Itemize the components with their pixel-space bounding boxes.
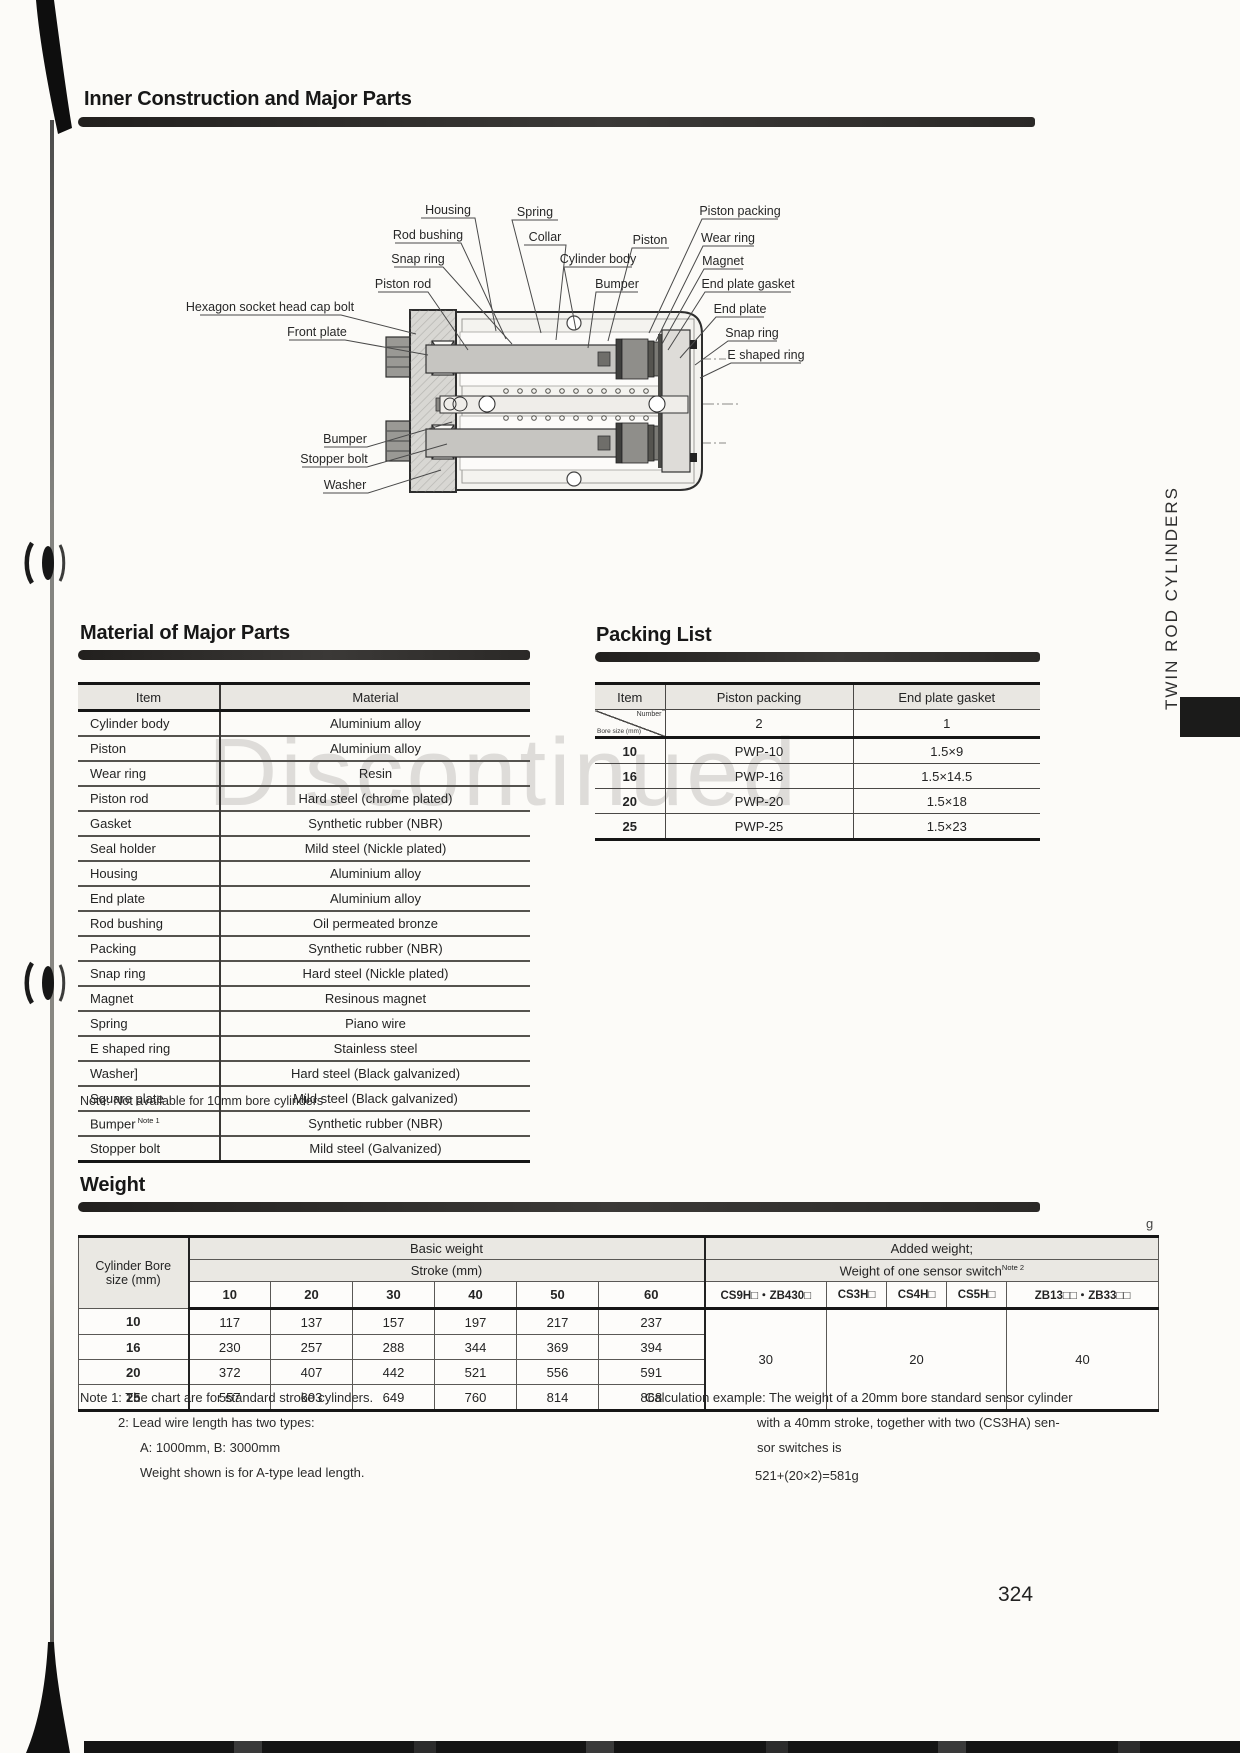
material-item: Housing — [78, 861, 220, 886]
weight-bore-size: 10 — [79, 1309, 189, 1335]
packing-header-end-plate-gasket: End plate gasket — [853, 684, 1040, 710]
stroke-column-header: 60 — [599, 1282, 705, 1309]
packing-row: 10PWP-101.5×9 — [595, 738, 1040, 764]
stroke-column-header: 50 — [517, 1282, 599, 1309]
stroke-header: Stroke (mm) — [189, 1260, 705, 1282]
section-bar — [595, 652, 1040, 662]
diagram-part-label: Piston — [633, 233, 668, 247]
material-item: Bumper Note 1 — [78, 1111, 220, 1136]
material-table: Item Material Cylinder bodyAluminium all… — [78, 682, 530, 1163]
weight-value: 591 — [599, 1360, 705, 1385]
added-weight-header: Added weight; — [705, 1237, 1159, 1260]
diagram-part-label: E shaped ring — [727, 348, 804, 362]
weight-value: 257 — [271, 1335, 353, 1360]
packing-bore-size: 25 — [595, 814, 665, 840]
section-title-weight: Weight — [80, 1174, 145, 1197]
packing-bore-size: 16 — [595, 764, 665, 789]
sensor-switch-header: Weight of one sensor switchNote 2 — [705, 1260, 1159, 1282]
cylinder-cross-section-diagram: HousingSpringPiston packingRod bushingCo… — [0, 0, 1240, 620]
weight-value: 344 — [435, 1335, 517, 1360]
sensor-switch-column-header: CS3H□ — [827, 1282, 887, 1309]
diagram-part-label: Rod bushing — [393, 228, 463, 242]
material-row: Wear ringResin — [78, 761, 530, 786]
material-value: Synthetic rubber (NBR) — [220, 811, 530, 836]
packing-count: 2 — [665, 710, 853, 738]
weight-value: 442 — [353, 1360, 435, 1385]
material-row: SpringPiano wire — [78, 1011, 530, 1036]
weight-value: 407 — [271, 1360, 353, 1385]
material-value: Aluminium alloy — [220, 886, 530, 911]
material-row: MagnetResinous magnet — [78, 986, 530, 1011]
material-item: Packing — [78, 936, 220, 961]
diagram-part-label: Magnet — [702, 254, 744, 268]
packing-row: 16PWP-161.5×14.5 — [595, 764, 1040, 789]
weight-unit-label: g — [1146, 1216, 1153, 1231]
page-edge-bar — [84, 1741, 1240, 1753]
material-header-item: Item — [78, 684, 220, 711]
material-row: Seal holderMild steel (Nickle plated) — [78, 836, 530, 861]
material-value: Aluminium alloy — [220, 736, 530, 761]
calc-example-line3: sor switches is — [757, 1440, 842, 1455]
material-row: Cylinder bodyAluminium alloy — [78, 711, 530, 737]
sensor-switch-column-header: CS4H□ — [887, 1282, 947, 1309]
diagonal-label-bore-size: Bore size (mm) — [597, 728, 641, 735]
diagram-part-label: Housing — [425, 203, 471, 217]
weight-value: 230 — [189, 1335, 271, 1360]
side-tab-marker — [1180, 697, 1240, 737]
material-row: Rod bushingOil permeated bronze — [78, 911, 530, 936]
packing-row: 25PWP-251.5×23 — [595, 814, 1040, 840]
packing-count-row: Number Bore size (mm) 2 1 — [595, 710, 1040, 738]
diagram-part-label: Stopper bolt — [300, 452, 368, 466]
page-number: 324 — [998, 1583, 1033, 1607]
material-item: Rod bushing — [78, 911, 220, 936]
material-value: Hard steel (chrome plated) — [220, 786, 530, 811]
weight-value: 117 — [189, 1309, 271, 1335]
diagram-part-label: Snap ring — [725, 326, 779, 340]
weight-value: 556 — [517, 1360, 599, 1385]
material-value: Synthetic rubber (NBR) — [220, 936, 530, 961]
calc-example-line1: Calculation example: The weight of a 20m… — [645, 1390, 1073, 1405]
weight-value: 760 — [435, 1385, 517, 1411]
weight-value: 237 — [599, 1309, 705, 1335]
weight-value: 372 — [189, 1360, 271, 1385]
piston-packing-model: PWP-25 — [665, 814, 853, 840]
piston-packing-model: PWP-10 — [665, 738, 853, 764]
material-item: Piston rod — [78, 786, 220, 811]
piston-packing-model: PWP-20 — [665, 789, 853, 814]
weight-value: 288 — [353, 1335, 435, 1360]
material-item: Washer] — [78, 1061, 220, 1086]
diagram-part-label: Hexagon socket head cap bolt — [186, 300, 355, 314]
weight-value: 369 — [517, 1335, 599, 1360]
material-row: Snap ringHard steel (Nickle plated) — [78, 961, 530, 986]
material-row: E shaped ringStainless steel — [78, 1036, 530, 1061]
diagram-part-label: Front plate — [287, 325, 347, 339]
material-value: Aluminium alloy — [220, 711, 530, 737]
material-value: Hard steel (Black galvanized) — [220, 1061, 530, 1086]
weight-note-1: Note 1: The chart are for standard strok… — [80, 1390, 373, 1405]
section-bar — [78, 1202, 1040, 1212]
material-item: Seal holder — [78, 836, 220, 861]
material-row: Stopper boltMild steel (Galvanized) — [78, 1136, 530, 1162]
material-value: Mild steel (Nickle plated) — [220, 836, 530, 861]
piston-packing-model: PWP-16 — [665, 764, 853, 789]
packing-row: 20PWP-201.5×18 — [595, 789, 1040, 814]
packing-list-table: Item Piston packing End plate gasket Num… — [595, 682, 1040, 841]
stroke-column-header: 20 — [271, 1282, 353, 1309]
material-row: GasketSynthetic rubber (NBR) — [78, 811, 530, 836]
material-item: Spring — [78, 1011, 220, 1036]
weight-row: 10117137157197217237302040 — [79, 1309, 1159, 1335]
weight-value: 814 — [517, 1385, 599, 1411]
weight-note-2b: Weight shown is for A-type lead length. — [140, 1465, 365, 1480]
weight-value: 137 — [271, 1309, 353, 1335]
material-item: Magnet — [78, 986, 220, 1011]
gasket-count: 1 — [853, 710, 1040, 738]
diagram-part-label: Bumper — [323, 432, 367, 446]
weight-note-2a: A: 1000mm, B: 3000mm — [140, 1440, 280, 1455]
bolt-glyph — [386, 337, 410, 461]
material-value: Resin — [220, 761, 530, 786]
material-item: Wear ring — [78, 761, 220, 786]
weight-value: 521 — [435, 1360, 517, 1385]
material-value: Stainless steel — [220, 1036, 530, 1061]
diagram-part-label: End plate gasket — [701, 277, 795, 291]
diagram-part-label: Cylinder body — [560, 252, 637, 266]
stroke-column-header: 10 — [189, 1282, 271, 1309]
weight-bore-size: 20 — [79, 1360, 189, 1385]
diagram-leader-line — [700, 363, 801, 378]
packing-header-item: Item — [595, 684, 665, 710]
section-title-material: Material of Major Parts — [80, 622, 290, 645]
material-item: Snap ring — [78, 961, 220, 986]
weight-value: 217 — [517, 1309, 599, 1335]
material-value: Oil permeated bronze — [220, 911, 530, 936]
material-item: E shaped ring — [78, 1036, 220, 1061]
stroke-column-header: 40 — [435, 1282, 517, 1309]
basic-weight-header: Basic weight — [189, 1237, 705, 1260]
end-plate-gasket-size: 1.5×14.5 — [853, 764, 1040, 789]
end-plate-gasket-size: 1.5×23 — [853, 814, 1040, 840]
weight-note-2: 2: Lead wire length has two types: — [118, 1415, 315, 1430]
material-item: Cylinder body — [78, 711, 220, 737]
packing-header-piston-packing: Piston packing — [665, 684, 853, 710]
material-value: Synthetic rubber (NBR) — [220, 1111, 530, 1136]
material-row: Bumper Note 1Synthetic rubber (NBR) — [78, 1111, 530, 1136]
diagram-part-label: Bumper — [595, 277, 639, 291]
material-value: Mild steel (Galvanized) — [220, 1136, 530, 1162]
material-value: Piano wire — [220, 1011, 530, 1036]
material-row: Washer]Hard steel (Black galvanized) — [78, 1061, 530, 1086]
material-item: Piston — [78, 736, 220, 761]
material-item: Stopper bolt — [78, 1136, 220, 1162]
diagram-part-label: Piston rod — [375, 277, 431, 291]
diagram-part-label: Washer — [324, 478, 367, 492]
section-bar — [78, 650, 530, 660]
sensor-switch-column-header: CS9H□・ZB430□ — [705, 1282, 827, 1309]
sensor-switch-column-header: ZB13□□・ZB33□□ — [1007, 1282, 1159, 1309]
weight-value: 197 — [435, 1309, 517, 1335]
packing-diagonal-cell: Number Bore size (mm) — [595, 710, 665, 738]
binder-hole-mark — [22, 960, 70, 1006]
end-plate-gasket-size: 1.5×18 — [853, 789, 1040, 814]
diagram-part-label: Snap ring — [391, 252, 445, 266]
diagonal-label-number: Number — [637, 711, 662, 718]
diagram-part-label: Collar — [529, 230, 562, 244]
material-header-material: Material — [220, 684, 530, 711]
weight-bore-size: 16 — [79, 1335, 189, 1360]
material-item: End plate — [78, 886, 220, 911]
diagram-part-label: Piston packing — [699, 204, 780, 218]
sensor-switch-column-header: CS5H□ — [947, 1282, 1007, 1309]
diagram-part-label: Wear ring — [701, 231, 755, 245]
catalog-page: TWIN ROD CYLINDERS Discontinued Inner Co… — [0, 0, 1240, 1753]
weight-corner-header: Cylinder Bore size (mm) — [79, 1237, 189, 1309]
material-row: PackingSynthetic rubber (NBR) — [78, 936, 530, 961]
material-value: Hard steel (Nickle plated) — [220, 961, 530, 986]
packing-bore-size: 10 — [595, 738, 665, 764]
material-row: End plateAluminium alloy — [78, 886, 530, 911]
weight-value: 394 — [599, 1335, 705, 1360]
material-table-note: Note: Not available for 10mm bore cylind… — [80, 1094, 323, 1108]
material-row: HousingAluminium alloy — [78, 861, 530, 886]
spine-shadow-bottom — [24, 1642, 84, 1753]
diagram-part-label: End plate — [714, 302, 767, 316]
material-value: Resinous magnet — [220, 986, 530, 1011]
weight-value: 157 — [353, 1309, 435, 1335]
calc-example-result: 521+(20×2)=581g — [755, 1468, 859, 1483]
material-row: PistonAluminium alloy — [78, 736, 530, 761]
diagram-part-label: Spring — [517, 205, 553, 219]
stroke-column-header: 30 — [353, 1282, 435, 1309]
calc-example-line2: with a 40mm stroke, together with two (C… — [757, 1415, 1060, 1430]
end-plate-gasket-size: 1.5×9 — [853, 738, 1040, 764]
material-row: Piston rodHard steel (chrome plated) — [78, 786, 530, 811]
packing-bore-size: 20 — [595, 789, 665, 814]
material-value: Aluminium alloy — [220, 861, 530, 886]
section-title-packing: Packing List — [596, 624, 711, 647]
material-item: Gasket — [78, 811, 220, 836]
weight-table: Cylinder Bore size (mm) Basic weight Add… — [78, 1235, 1159, 1412]
